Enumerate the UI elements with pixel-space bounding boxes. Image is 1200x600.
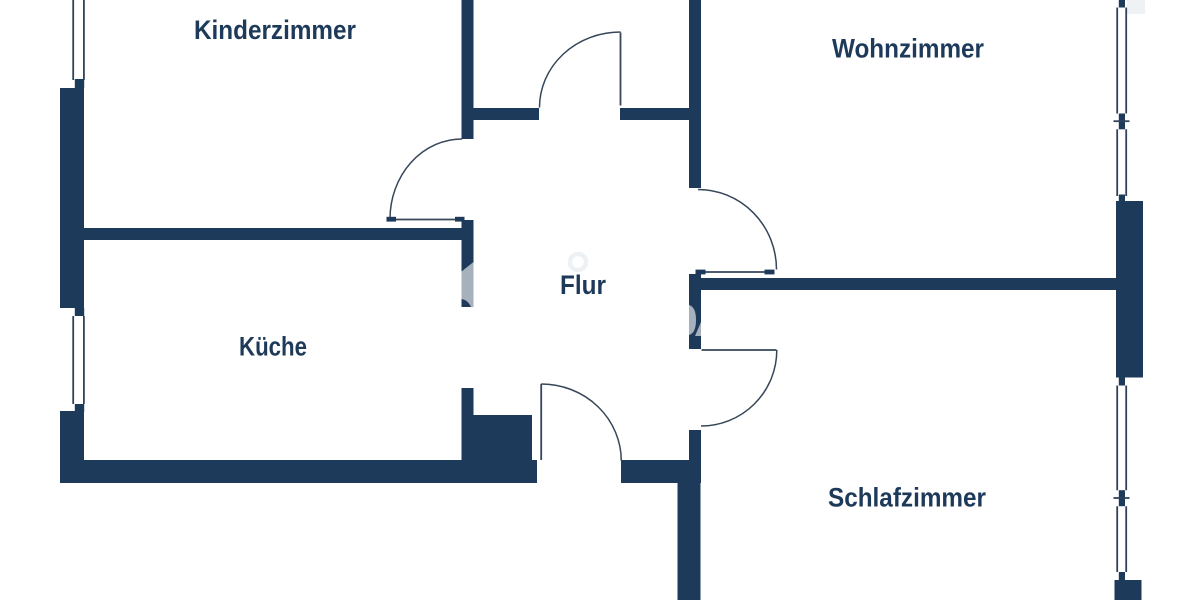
svg-text:Schlafzimmer: Schlafzimmer <box>828 483 986 513</box>
svg-text:Flur: Flur <box>560 270 606 300</box>
svg-text:Küche: Küche <box>239 332 307 362</box>
svg-text:Kinderzimmer: Kinderzimmer <box>194 15 356 45</box>
svg-text:Wohnzimmer: Wohnzimmer <box>832 33 984 63</box>
